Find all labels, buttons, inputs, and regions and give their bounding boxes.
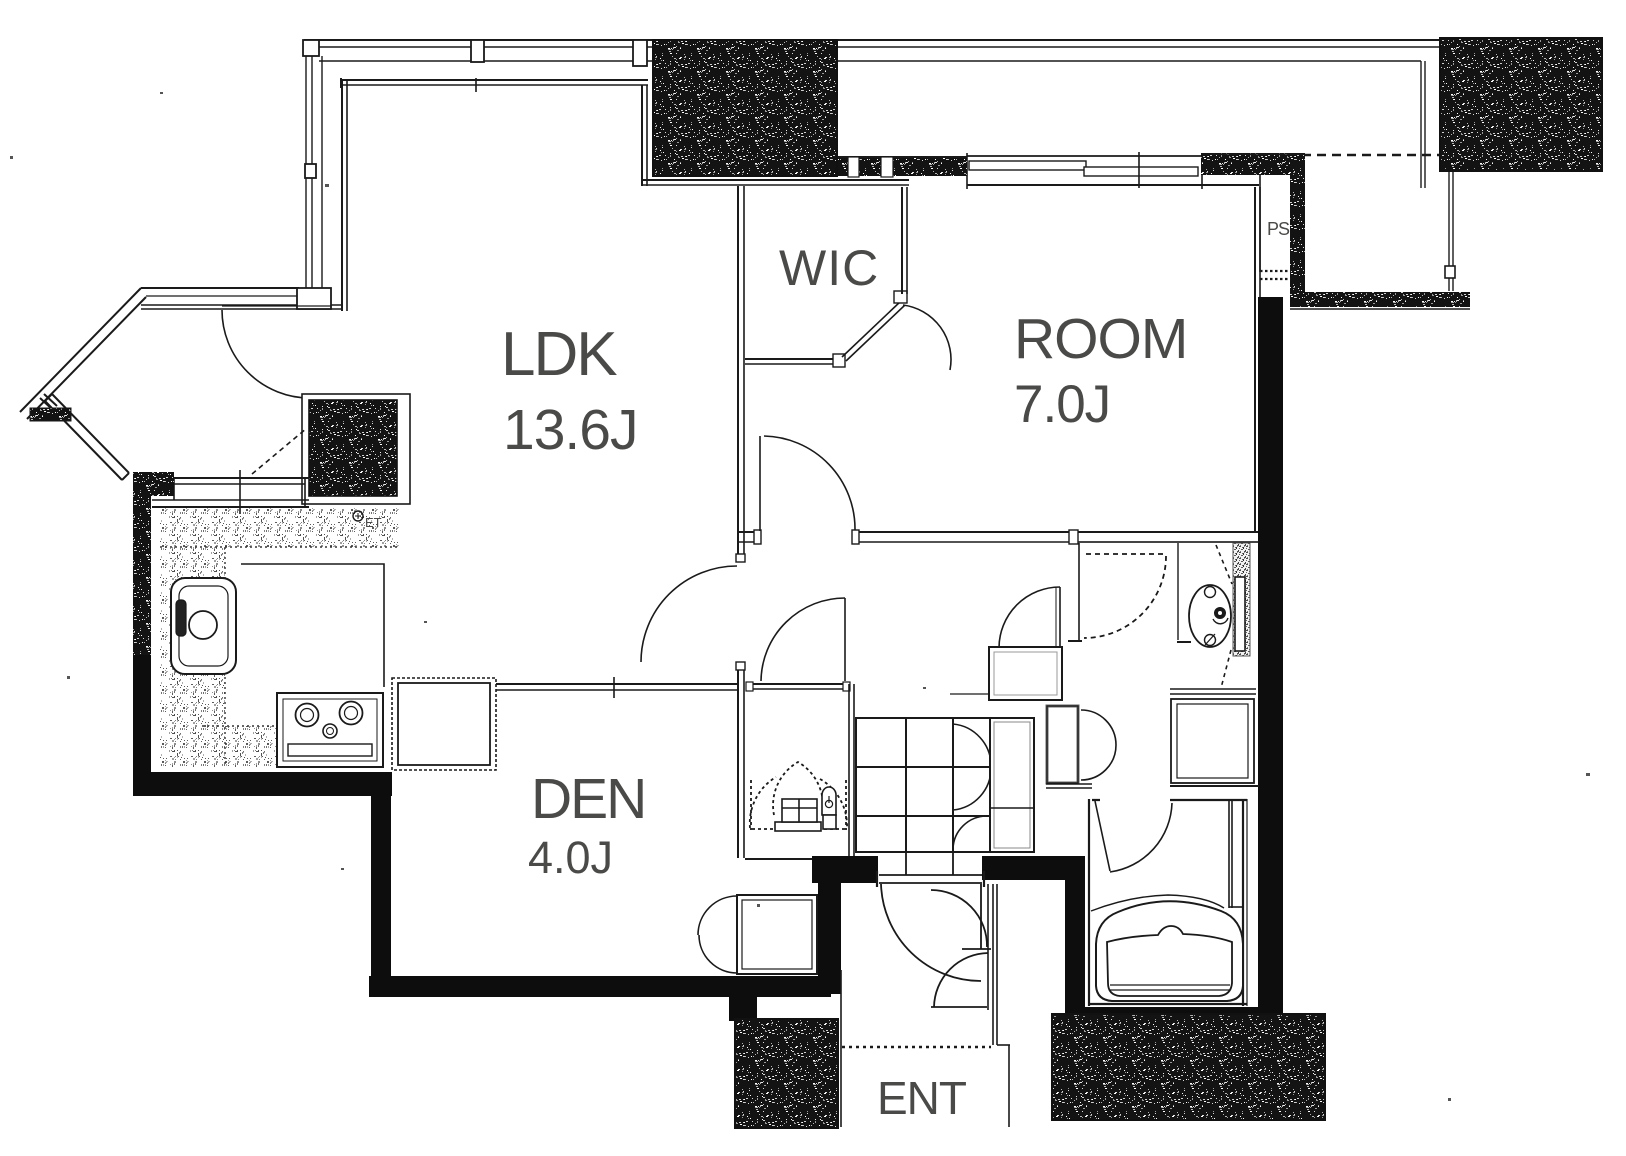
svg-text:13.6J: 13.6J — [503, 398, 637, 462]
svg-text:PS: PS — [1267, 219, 1290, 239]
svg-text:WIC: WIC — [779, 240, 879, 296]
svg-text:7.0J: 7.0J — [1014, 375, 1110, 434]
svg-text:ROOM: ROOM — [1014, 307, 1187, 371]
svg-text:ET: ET — [365, 515, 382, 530]
svg-text:LDK: LDK — [501, 320, 617, 389]
svg-text:DEN: DEN — [531, 767, 645, 831]
svg-text:4.0J: 4.0J — [528, 832, 613, 883]
svg-text:ENT: ENT — [877, 1072, 967, 1124]
